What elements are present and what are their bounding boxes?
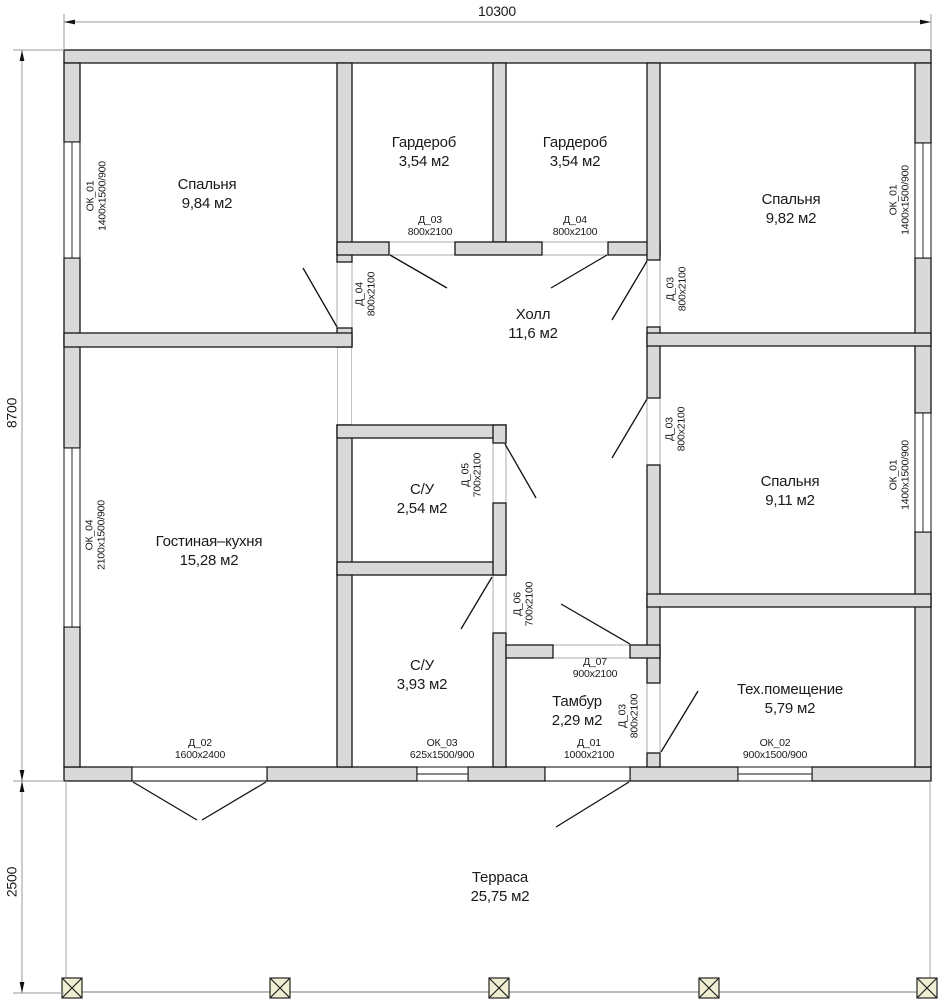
door-label-d01: Д_011000x2100 <box>564 738 614 761</box>
room-label-bath-1: С/У2,54 м2 <box>397 481 448 518</box>
column-marker <box>489 978 509 998</box>
window-label-ok02: ОК_02900x1500/900 <box>743 738 807 761</box>
door-label-d05: Д_05700x2100 <box>461 453 484 498</box>
room-label-wardrobe-2: Гардероб3,54 м2 <box>543 134 607 171</box>
room-label-bedroom-3: Спальня9,11 м2 <box>761 473 820 510</box>
column-marker <box>917 978 937 998</box>
room-label-terrace: Терраса25,75 м2 <box>471 869 530 906</box>
room-label-bath-2: С/У3,93 м2 <box>397 657 448 694</box>
window-label-ok01-right-top: ОК_011400x1500/900 <box>889 165 912 235</box>
door-label-d02: Д_021600x2400 <box>175 738 225 761</box>
column-marker <box>699 978 719 998</box>
window-label-ok01-left: ОК_011400x1500/900 <box>86 161 109 231</box>
door-label-d03-top: Д_03800x2100 <box>408 215 453 238</box>
window-label-ok04-left: ОК_042100x1500/900 <box>85 500 108 570</box>
window-label-ok01-right-mid: ОК_011400x1500/900 <box>889 440 912 510</box>
window-label-ok03: ОК_03625x1500/900 <box>410 738 474 761</box>
room-label-hall: Холл11,6 м2 <box>508 306 558 343</box>
room-label-tech-room: Тех.помещение5,79 м2 <box>737 681 843 718</box>
door-label-d03-bedroom3: Д_03800x2100 <box>665 407 688 452</box>
room-label-living-kitchen: Гостиная–кухня15,28 м2 <box>156 533 263 570</box>
door-label-d03-bedroom2: Д_03800x2100 <box>666 267 689 312</box>
door-label-d07: Д_07900x2100 <box>573 657 618 680</box>
room-label-vestibule: Тамбур2,29 м2 <box>552 693 603 730</box>
open-passage <box>338 347 352 425</box>
room-label-bedroom-2: Спальня9,82 м2 <box>762 191 821 228</box>
room-label-bedroom-1: Спальня9,84 м2 <box>178 176 237 213</box>
door-label-d06: Д_06700x2100 <box>513 582 536 627</box>
room-label-wardrobe-1: Гардероб3,54 м2 <box>392 134 456 171</box>
dim-top-width: 10300 <box>478 4 516 19</box>
terrace-columns <box>62 978 937 998</box>
column-marker <box>62 978 82 998</box>
column-marker <box>270 978 290 998</box>
walls <box>64 50 931 781</box>
dim-left-height: 8700 <box>5 398 20 428</box>
door-label-d04-top: Д_04800x2100 <box>553 215 598 238</box>
floor-plan-page: 10300 8700 2500 Спальня9,84 м2 Гардероб3… <box>0 0 942 1000</box>
door-label-d03-tech: Д_03800x2100 <box>618 694 641 739</box>
door-label-d04-bedroom1: Д_04800x2100 <box>355 272 378 317</box>
dim-terrace-depth: 2500 <box>5 867 20 897</box>
